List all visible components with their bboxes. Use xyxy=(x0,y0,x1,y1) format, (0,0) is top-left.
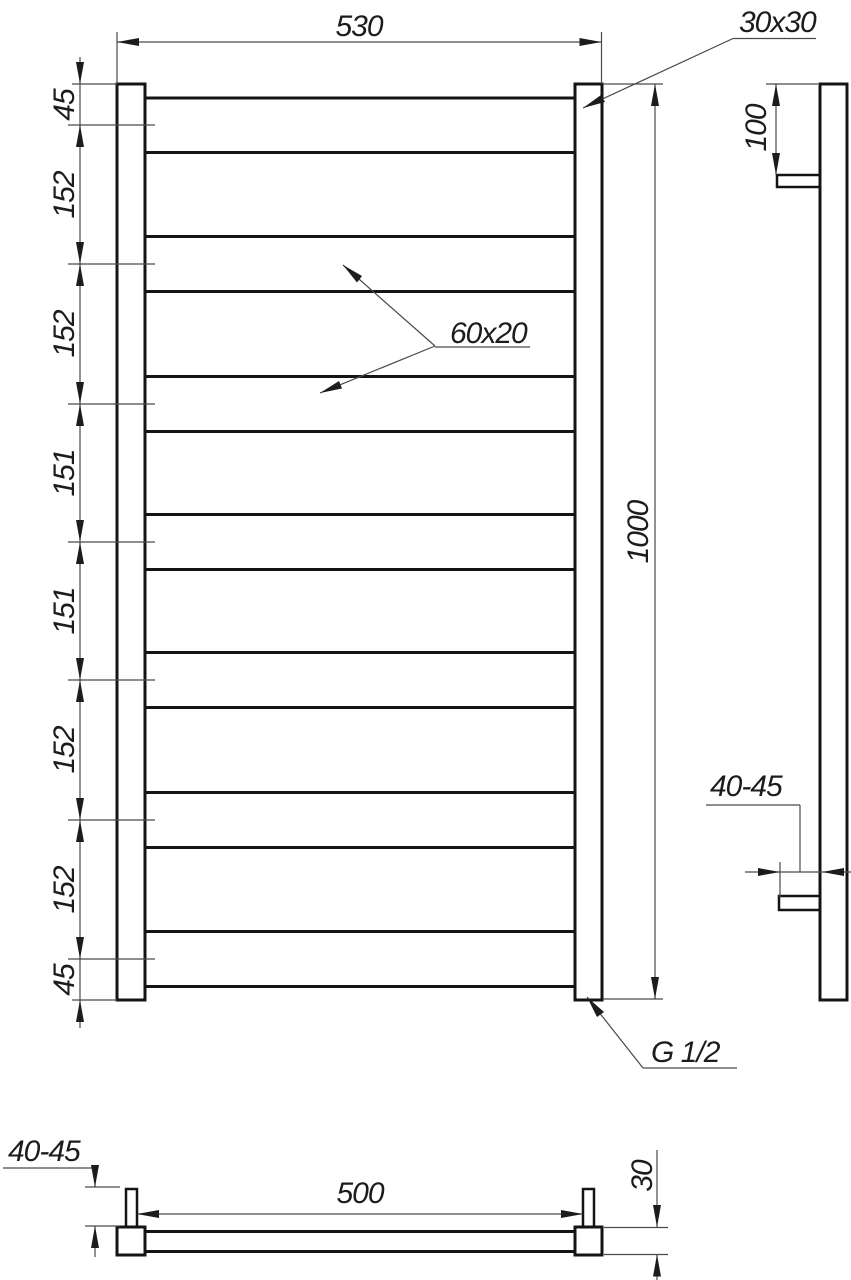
front-view xyxy=(117,84,602,1000)
bottom-left-connector xyxy=(126,1189,137,1227)
arrowhead xyxy=(76,404,84,426)
callout-rung-profile: 60x20 xyxy=(320,265,530,393)
side-view xyxy=(777,84,847,1000)
arrowhead xyxy=(580,38,602,46)
dim-label-45-top: 45 xyxy=(48,88,81,121)
side-top-connector xyxy=(777,175,821,187)
dim-width-530: 530 xyxy=(117,10,602,84)
dim-top-offset-100: 100 xyxy=(740,84,818,175)
callout-thread: G 1/2 xyxy=(587,997,737,1069)
bottom-left-bracket xyxy=(117,1227,145,1255)
leader-line xyxy=(583,39,733,109)
arrowhead xyxy=(76,264,84,286)
arrowhead xyxy=(76,542,84,564)
arrowhead xyxy=(320,381,342,393)
arrowhead xyxy=(561,1210,583,1218)
bottom-right-connector xyxy=(583,1189,594,1227)
arrowhead xyxy=(651,977,659,999)
bottom-right-bracket xyxy=(575,1227,602,1255)
rung-5 xyxy=(145,653,575,708)
dim-label-152-4: 152 xyxy=(48,865,81,913)
side-post xyxy=(820,84,847,1000)
arrowhead xyxy=(76,798,84,820)
callout-post-profile: 30x30 xyxy=(583,6,817,108)
arrowhead xyxy=(76,242,84,264)
label-g12: G 1/2 xyxy=(651,1036,721,1069)
dim-depth-30: 30 xyxy=(604,1150,668,1280)
arrowhead xyxy=(76,820,84,842)
label-60x20: 60x20 xyxy=(450,317,528,350)
label-30x30: 30x30 xyxy=(739,6,817,39)
arrowhead xyxy=(653,1255,661,1277)
arrowhead xyxy=(76,382,84,404)
arrowhead xyxy=(76,62,84,84)
arrowhead xyxy=(76,520,84,542)
arrowhead xyxy=(772,153,780,175)
right-post xyxy=(575,84,602,1000)
dim-label-152-3: 152 xyxy=(48,725,81,773)
dim-connection-spacing-500: 500 xyxy=(137,1177,583,1218)
dim-label-100: 100 xyxy=(740,103,773,151)
dim-label-30: 30 xyxy=(626,1159,659,1192)
arrowhead xyxy=(76,125,84,147)
dim-label-152-2: 152 xyxy=(48,309,81,357)
rung-4 xyxy=(145,515,575,570)
dim-label-40-45-side: 40-45 xyxy=(710,770,783,803)
arrowhead xyxy=(651,84,659,106)
dim-label-40-45-bottom: 40-45 xyxy=(8,1135,81,1168)
arrowhead xyxy=(76,680,84,702)
arrowhead xyxy=(772,84,780,106)
arrowhead xyxy=(76,1000,84,1022)
dim-label-151-2: 151 xyxy=(48,587,81,634)
arrowhead xyxy=(76,658,84,680)
arrowhead xyxy=(653,1205,661,1227)
dim-label-45-bottom: 45 xyxy=(48,963,81,996)
rung-2 xyxy=(145,237,575,292)
rung-7 xyxy=(145,932,575,987)
dim-label-152-1: 152 xyxy=(48,170,81,218)
bottom-rail-tube xyxy=(145,1232,575,1252)
rung-6 xyxy=(145,793,575,848)
dim-wall-distance-bottom: 40-45 xyxy=(3,1135,120,1257)
dim-label-530: 530 xyxy=(335,10,383,43)
arrowhead xyxy=(117,38,139,46)
arrowhead xyxy=(758,868,780,876)
arrowhead xyxy=(91,1165,99,1187)
arrowhead xyxy=(91,1226,99,1248)
rung-3 xyxy=(145,377,575,432)
technical-drawing-canvas: 45 152 152 151 151 152 152 45 530 30x30 … xyxy=(0,0,851,1280)
dim-label-500: 500 xyxy=(336,1177,384,1210)
dim-label-151-1: 151 xyxy=(48,449,81,496)
dim-height-1000: 1000 xyxy=(603,84,663,999)
rung-1 xyxy=(145,98,575,153)
arrowhead xyxy=(76,937,84,959)
towel-rail-drawing: 45 152 152 151 151 152 152 45 530 30x30 … xyxy=(0,0,851,1280)
dim-label-1000: 1000 xyxy=(622,499,655,563)
arrowhead xyxy=(137,1210,159,1218)
side-bottom-connector xyxy=(779,896,821,910)
